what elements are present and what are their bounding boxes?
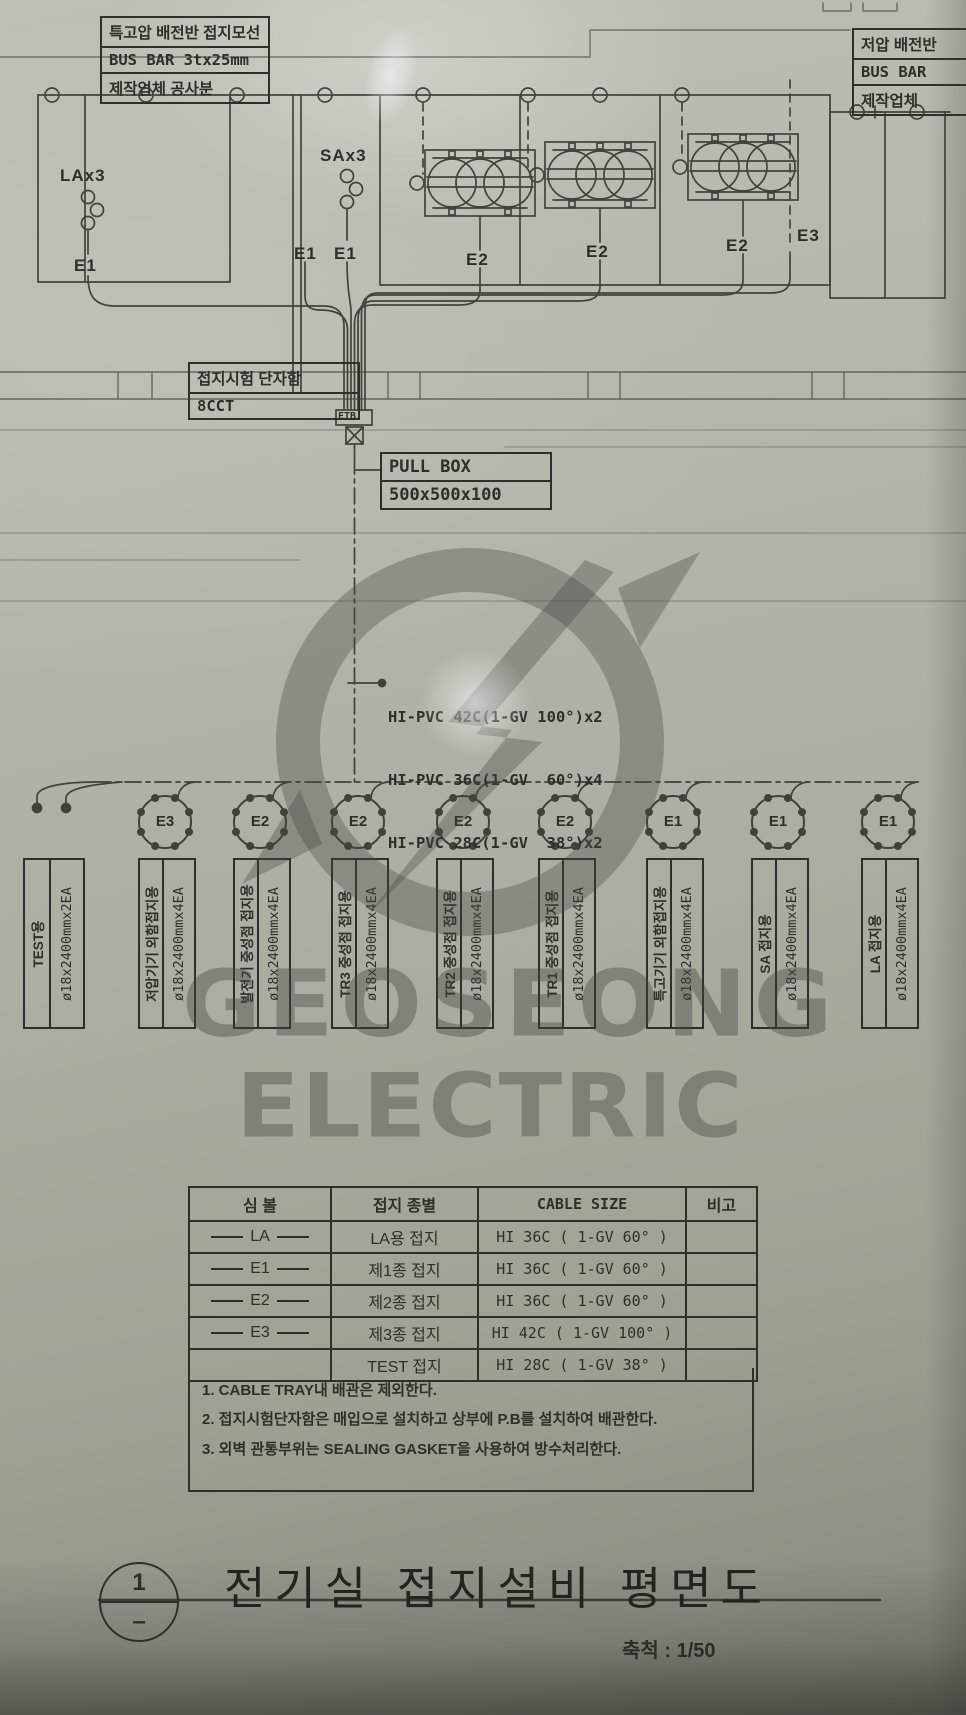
electrode-ring-label: E2 (550, 813, 580, 830)
electrode-spec-label: ø18x2400mmx4EA (364, 887, 380, 1001)
electrode-use-label: 발전기 중성점 접지용 (236, 884, 256, 1003)
busbar-note-line: 제작업체 (854, 86, 966, 114)
cable-cell: HI 42C ( 1-GV 100° ) (479, 1318, 687, 1348)
busbar-note-line: 제작업체 공사분 (102, 74, 268, 102)
electrode-label-box: LA 접지용 ø18x2400mmx4EA (861, 858, 919, 1029)
electrode-label-box: 저압기기 외함접지용 ø18x2400mmx4EA (138, 858, 196, 1029)
busbar-note-line: 저압 배전반 (854, 30, 966, 60)
busbar-annotation-box: 특고압 배전반 접지모선 BUS BAR 3tx25mm 제작업체 공사분 (100, 16, 270, 104)
electrode-spec-label: ø18x2400mmx4EA (571, 887, 587, 1001)
electrode-use-label: TR3 중성점 접지용 (334, 890, 354, 998)
remark-cell (687, 1318, 756, 1348)
electrode-spec-label: ø18x2400mmx4EA (894, 887, 910, 1001)
electrode-spec-label: ø18x2400mmx4EA (784, 887, 800, 1001)
conduit-spec-line: HI-PVC 42C(1-GV 100°)x2 (388, 707, 603, 728)
conduit-spec-line: HI-PVC 28C(1-GV 38°)x2 (388, 833, 603, 854)
electrode-spec-label: ø18x2400mmx4EA (469, 887, 485, 1001)
electrode-label-box: TR2 중성점 접지용 ø18x2400mmx4EA (436, 858, 494, 1029)
scale-label: 축척 : 1/50 (622, 1634, 716, 1663)
electrode-use-label: LA 접지용 (864, 914, 884, 973)
kind-cell: 제2종 접지 (332, 1286, 479, 1316)
transformer-1 (410, 150, 535, 250)
electrode-ring-label: E1 (658, 813, 688, 830)
busbar-note-line: BUS BAR (854, 60, 966, 86)
busbar-annotation-box-right: 저압 배전반 BUS BAR 제작업체 (852, 28, 966, 116)
remark-cell (687, 1222, 756, 1252)
conduit-spec-line: HI-PVC 36C(1-GV 60°)x4 (388, 770, 603, 791)
note-line: 2. 접지시험단자함은 매입으로 설치하고 상부에 P.B를 설치하여 배관한다… (202, 1405, 740, 1434)
symbol-cell: E1 (190, 1254, 332, 1284)
busbar-note-line: 특고압 배전반 접지모선 (102, 18, 268, 48)
pull-box-label: PULL BOX 500x500x100 (380, 452, 552, 510)
electrode-ring-label: E1 (763, 813, 793, 830)
detail-number-bubble: 1 – (99, 1562, 179, 1642)
lower-wall-band (0, 372, 966, 399)
symbol-text: E3 (250, 1324, 270, 1342)
pull-box-line: PULL BOX (382, 454, 550, 482)
electrode-spec-label: ø18x2400mmx4EA (679, 887, 695, 1001)
detail-sheet: – (101, 1603, 177, 1640)
electrode-use-label: TR2 중성점 접지용 (439, 890, 459, 998)
electrode-use-label: 특고기기 외함접지용 (649, 886, 669, 1002)
surge-arrester-symbol (341, 170, 363, 241)
transformer-3 (673, 134, 798, 236)
symbol-cell: LA (190, 1222, 332, 1252)
busbar-note-line: BUS BAR 3tx25mm (102, 48, 268, 74)
electrode-spec-label: ø18x2400mmx4EA (266, 887, 282, 1001)
electrode-use-label: TR1 중성점 접지용 (541, 890, 561, 998)
symbol-text: E2 (250, 1292, 270, 1310)
electrode-label-box-test: TEST용 ø18x2400mmx2EA (23, 858, 85, 1029)
general-notes: 1. CABLE TRAY내 배관은 제외한다. 2. 접지시험단자함은 매입으… (188, 1368, 754, 1492)
symbol-cell: E2 (190, 1286, 332, 1316)
sa-equipment-label: SAx3 (320, 146, 367, 166)
table-header-row: 심 볼 접지 종별 CABLE SIZE 비고 (190, 1188, 756, 1222)
note-line: 1. CABLE TRAY내 배관은 제외한다. (202, 1376, 740, 1405)
dashed-feeders (423, 80, 790, 245)
drawing-photo: 특고압 배전반 접지모선 BUS BAR 3tx25mm 제작업체 공사분 저압… (0, 0, 966, 1715)
conduit-note-leader (348, 680, 386, 687)
electrode-use-label: SA 접지용 (754, 914, 774, 973)
electrode-use-label: TEST용 (27, 920, 47, 967)
ground-point-label-e1: E1 (294, 244, 317, 264)
etb-box-line: 접지시험 단자함 (190, 364, 358, 394)
note-line: 3. 외벽 관통부위는 SEALING GASKET을 사용하여 방수처리한다. (202, 1435, 740, 1464)
electrode-ring-label: E3 (150, 813, 180, 830)
electrode-label-box: 발전기 중성점 접지용 ø18x2400mmx4EA (233, 858, 291, 1029)
table-row: E2 제2종 접지 HI 36C ( 1-GV 60° ) (190, 1286, 756, 1318)
table-row: E1 제1종 접지 HI 36C ( 1-GV 60° ) (190, 1254, 756, 1286)
detail-number: 1 (101, 1564, 177, 1603)
electrode-use-label: 저압기기 외함접지용 (141, 886, 161, 1002)
ground-point-label-e2: E2 (586, 242, 609, 262)
electrode-ring-label: E2 (343, 813, 373, 830)
electrode-label-box: 특고기기 외함접지용 ø18x2400mmx4EA (646, 858, 704, 1029)
electrode-ring-label: E2 (448, 813, 478, 830)
remark-cell (687, 1286, 756, 1316)
symbol-cell: E3 (190, 1318, 332, 1348)
grounding-legend-table: 심 볼 접지 종별 CABLE SIZE 비고 LA LA용 접지 HI 36C… (188, 1186, 758, 1382)
kind-cell: 제1종 접지 (332, 1254, 479, 1284)
ground-point-label-e1: E1 (74, 256, 97, 276)
table-row: E3 제3종 접지 HI 42C ( 1-GV 100° ) (190, 1318, 756, 1350)
symbol-text: E1 (250, 1260, 270, 1278)
kind-cell: LA용 접지 (332, 1222, 479, 1252)
table-header-kind: 접지 종별 (332, 1188, 479, 1220)
test-electrode-drops (33, 782, 123, 813)
electrode-ring-label: E1 (873, 813, 903, 830)
la-equipment-label: LAx3 (60, 166, 106, 186)
table-row: LA LA용 접지 HI 36C ( 1-GV 60° ) (190, 1222, 756, 1254)
table-header-cable: CABLE SIZE (479, 1188, 687, 1220)
ground-point-label-e2: E2 (466, 250, 489, 270)
cable-cell: HI 36C ( 1-GV 60° ) (479, 1254, 687, 1284)
electrode-spec-label: ø18x2400mmx4EA (171, 887, 187, 1001)
electrode-label-box: SA 접지용 ø18x2400mmx4EA (751, 858, 809, 1029)
electrode-spec-label: ø18x2400mmx2EA (59, 887, 75, 1001)
ground-point-label-e1: E1 (334, 244, 357, 264)
electrode-label-box: TR3 중성점 접지용 ø18x2400mmx4EA (331, 858, 389, 1029)
transformer-2 (530, 142, 655, 242)
table-header-symbol: 심 볼 (190, 1188, 332, 1220)
pull-box-line: 500x500x100 (382, 482, 550, 508)
remark-cell (687, 1254, 756, 1284)
ground-point-label-e3: E3 (797, 226, 820, 246)
cable-cell: HI 36C ( 1-GV 60° ) (479, 1222, 687, 1252)
ground-point-label-e2: E2 (726, 236, 749, 256)
symbol-text: LA (250, 1228, 270, 1246)
cable-cell: HI 36C ( 1-GV 60° ) (479, 1286, 687, 1316)
electrode-label-box: TR1 중성점 접지용 ø18x2400mmx4EA (538, 858, 596, 1029)
electrode-ring-label: E2 (245, 813, 275, 830)
ground-test-terminal-box: 접지시험 단자함 8CCT (188, 362, 360, 420)
kind-cell: 제3종 접지 (332, 1318, 479, 1348)
etb-box-line: 8CCT (190, 394, 358, 418)
drawing-title: 전기실 접지설비 평면도 (224, 1552, 771, 1617)
etb-tag: ETB (338, 411, 356, 422)
table-header-remark: 비고 (687, 1188, 756, 1220)
